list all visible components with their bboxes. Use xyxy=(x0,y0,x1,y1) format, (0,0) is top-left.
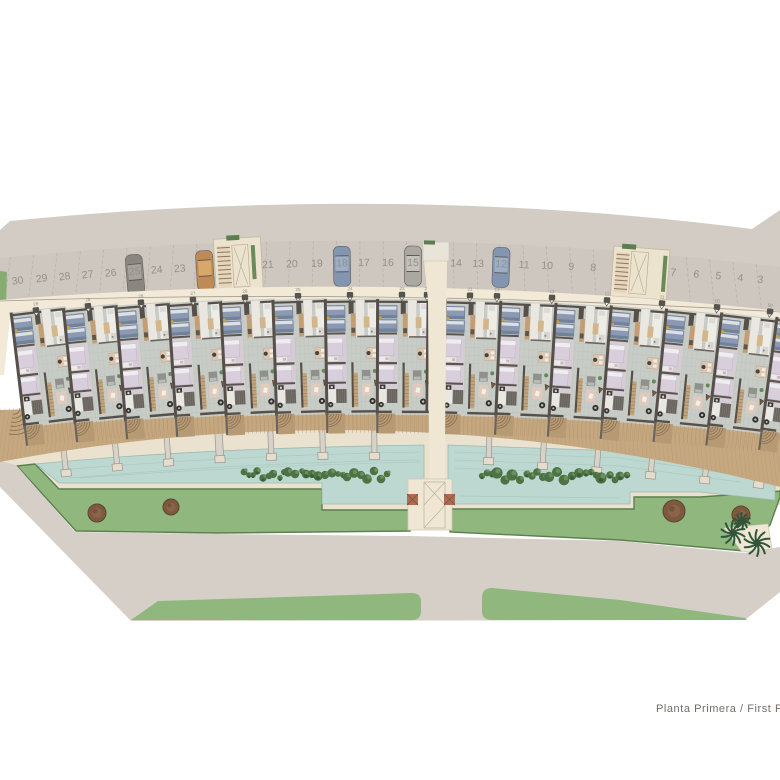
svg-text:25: 25 xyxy=(128,265,141,278)
svg-text:18: 18 xyxy=(336,257,348,269)
svg-text:9: 9 xyxy=(568,261,575,273)
svg-text:26: 26 xyxy=(242,289,248,294)
svg-text:21: 21 xyxy=(467,287,473,292)
svg-text:21: 21 xyxy=(262,259,274,271)
svg-text:29: 29 xyxy=(35,272,48,285)
svg-text:30: 30 xyxy=(11,274,24,287)
svg-text:12: 12 xyxy=(549,289,555,294)
svg-text:27: 27 xyxy=(190,291,196,296)
svg-text:27: 27 xyxy=(81,268,94,281)
svg-text:23: 23 xyxy=(399,286,405,291)
svg-text:25: 25 xyxy=(295,287,301,292)
svg-text:Planta Primera / First Floor: Planta Primera / First Floor xyxy=(656,703,780,715)
svg-text:10: 10 xyxy=(541,260,553,273)
svg-text:23: 23 xyxy=(174,262,187,275)
svg-text:12: 12 xyxy=(495,258,507,270)
svg-text:20: 20 xyxy=(286,258,298,270)
svg-text:13: 13 xyxy=(472,258,484,270)
svg-text:8: 8 xyxy=(590,262,597,274)
svg-text:17: 17 xyxy=(358,257,370,269)
svg-text:11: 11 xyxy=(518,259,530,271)
svg-text:28: 28 xyxy=(138,293,144,298)
svg-text:28: 28 xyxy=(58,270,71,283)
svg-text:19: 19 xyxy=(311,258,323,270)
svg-text:15: 15 xyxy=(407,257,419,269)
svg-text:24: 24 xyxy=(347,286,353,291)
svg-text:14: 14 xyxy=(450,257,462,269)
svg-text:13: 13 xyxy=(494,287,500,292)
svg-text:24: 24 xyxy=(150,264,163,277)
svg-text:16: 16 xyxy=(382,257,394,269)
svg-text:12: 12 xyxy=(604,291,610,296)
svg-text:26: 26 xyxy=(104,267,117,280)
